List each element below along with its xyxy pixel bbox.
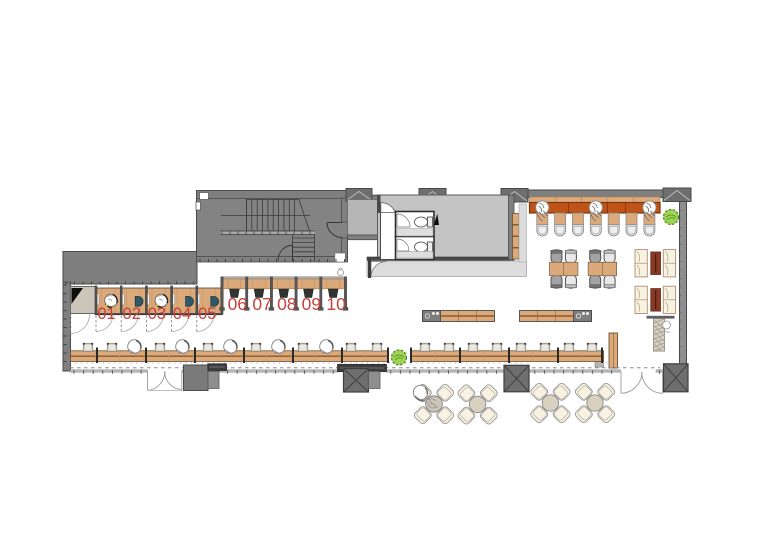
svg-text:08: 08 (277, 294, 296, 314)
svg-text:01: 01 (97, 305, 115, 323)
svg-text:04: 04 (173, 305, 191, 323)
svg-text:10: 10 (326, 294, 346, 314)
svg-text:02: 02 (123, 305, 141, 323)
svg-text:09: 09 (302, 294, 321, 314)
svg-text:03: 03 (148, 305, 166, 323)
svg-text:07: 07 (252, 294, 271, 314)
svg-text:06: 06 (228, 294, 247, 314)
svg-text:05: 05 (198, 305, 216, 323)
